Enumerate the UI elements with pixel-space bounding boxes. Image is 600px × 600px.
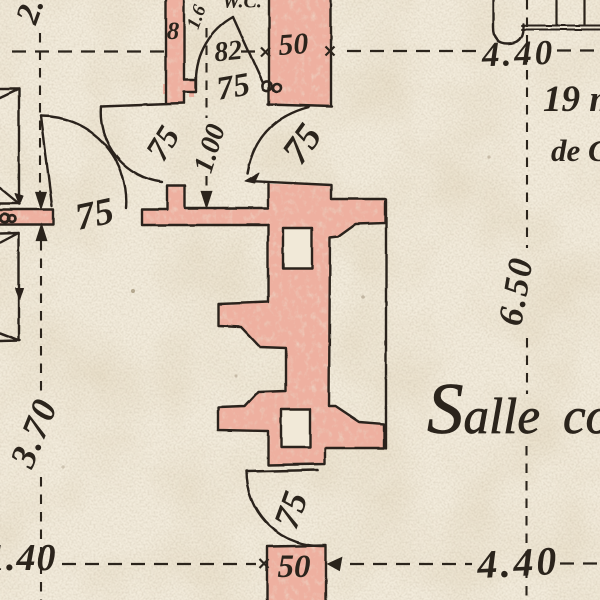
svg-text:1.40: 1.40 <box>0 537 57 579</box>
svg-text:de C: de C <box>551 133 600 168</box>
svg-text:19 ma: 19 ma <box>543 79 600 120</box>
svg-text:W.C.: W.C. <box>222 0 262 13</box>
svg-text:8: 8 <box>167 18 180 45</box>
svg-text:50: 50 <box>277 27 309 62</box>
svg-text:82: 82 <box>213 35 244 69</box>
svg-text:75: 75 <box>214 67 253 108</box>
svg-text:4.40: 4.40 <box>475 538 560 587</box>
svg-text:50: 50 <box>278 549 311 585</box>
svg-text:4.40: 4.40 <box>480 33 556 75</box>
